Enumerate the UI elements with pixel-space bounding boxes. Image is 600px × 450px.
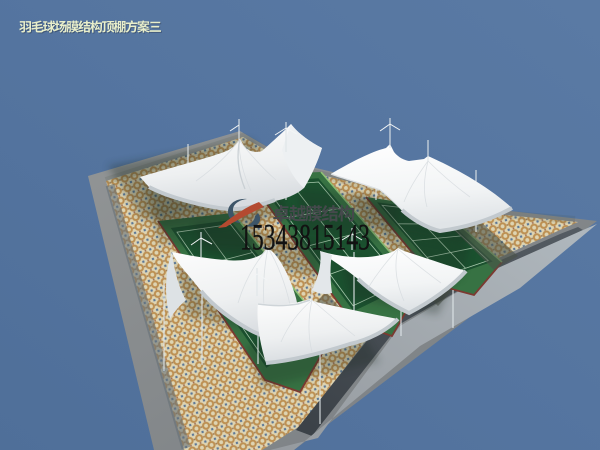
svg-text:15343815143: 15343815143: [240, 217, 370, 258]
